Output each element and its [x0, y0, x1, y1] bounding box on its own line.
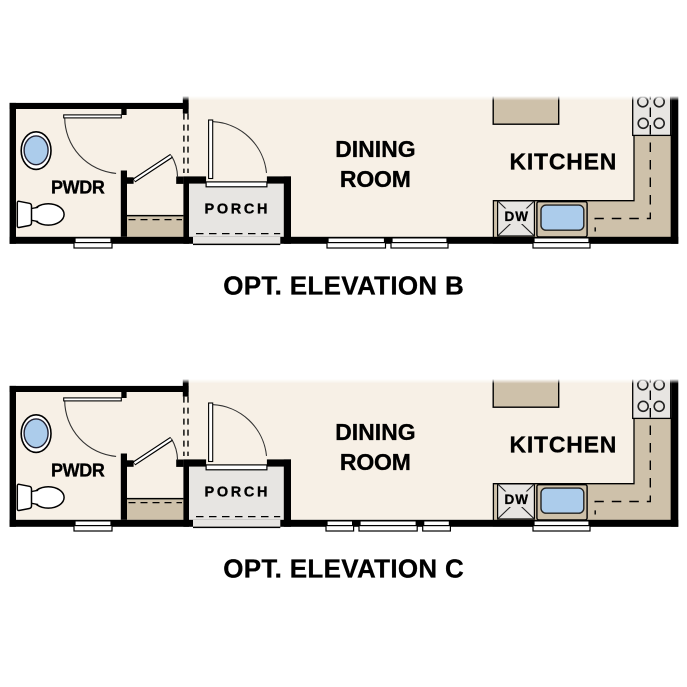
svg-text:ROOM: ROOM: [340, 449, 411, 475]
svg-text:DINING: DINING: [335, 136, 416, 162]
svg-text:PWDR: PWDR: [51, 177, 105, 197]
svg-text:PWDR: PWDR: [51, 460, 105, 480]
svg-text:DW: DW: [504, 209, 528, 224]
svg-text:OPT. ELEVATION B: OPT. ELEVATION B: [223, 271, 464, 301]
svg-text:PORCH: PORCH: [205, 201, 268, 217]
svg-text:KITCHEN: KITCHEN: [509, 149, 616, 175]
svg-text:DW: DW: [504, 492, 528, 507]
svg-text:DINING: DINING: [335, 419, 416, 445]
svg-text:KITCHEN: KITCHEN: [509, 432, 616, 458]
svg-text:ROOM: ROOM: [340, 166, 411, 192]
svg-text:OPT. ELEVATION C: OPT. ELEVATION C: [223, 554, 464, 584]
svg-text:PORCH: PORCH: [205, 484, 268, 500]
